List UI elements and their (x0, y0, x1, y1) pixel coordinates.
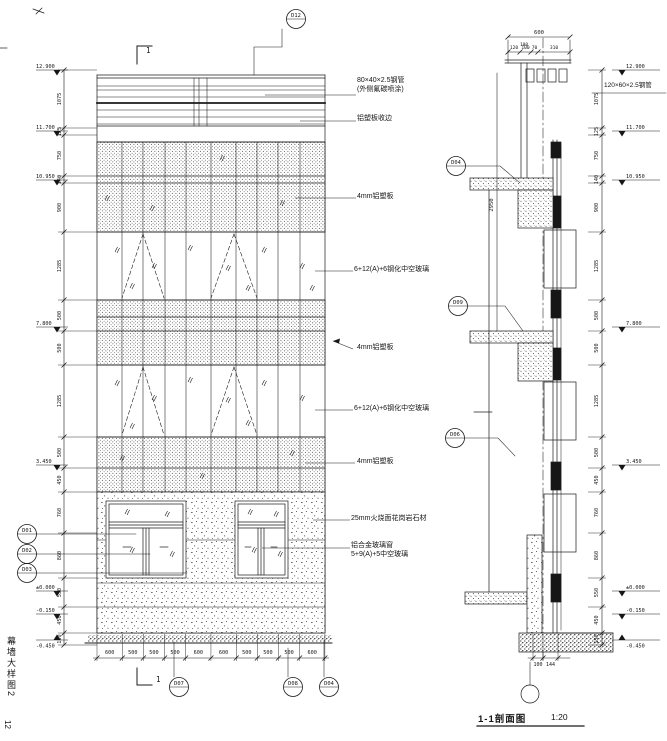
cad-sheet: 1075125750140900128550050012855004507608… (0, 0, 667, 741)
section-dim-scaffold (477, 37, 666, 726)
floor-slabs (465, 178, 613, 652)
section-top-dim-label: 70 (532, 45, 538, 51)
glass-mark (188, 377, 193, 383)
material-annotation: 80×40×2.5钢管(外侧氟碳喷涂) (357, 76, 404, 94)
right-dim-label: 450 (594, 615, 600, 624)
left-dim-label: 860 (57, 551, 63, 560)
bottom-dim-label: 600 (105, 650, 114, 656)
glass-mark (152, 395, 157, 401)
glass-mark (115, 247, 120, 253)
right-dim-label: 140 (594, 175, 600, 184)
bottom-dim-label: 500 (170, 650, 179, 656)
bottom-dim-label: 600 (308, 650, 317, 656)
level-triangle (54, 70, 61, 76)
section-top-dim-label: 120 (510, 45, 519, 51)
detail-bubble-label: D02 (22, 548, 32, 554)
detail-bubble-label: D06 (450, 432, 460, 438)
right-dim-label: 900 (594, 203, 600, 212)
level-triangle (619, 465, 626, 471)
level-label: 10.950 (36, 174, 55, 180)
material-annotation: 6+12(A)+6钢化中空玻璃 (354, 265, 429, 274)
level-label: ±0.000 (626, 585, 645, 591)
glass-mark (226, 265, 231, 271)
section-top-dim-label: 310 (550, 45, 559, 51)
material-annotation: 4mm铝塑板 (357, 343, 394, 352)
drawing-canvas: 1075125750140900128550050012855004507608… (0, 0, 667, 741)
steel-tube-note: 120×60×2.5钢管 (604, 79, 652, 89)
section-title: 1-1剖面图 (478, 711, 526, 725)
right-dim-label: 550 (594, 588, 600, 597)
level-triangle (619, 180, 626, 186)
section-bottom-dim-label: 144 (546, 662, 555, 668)
louver-band (97, 78, 325, 126)
material-annotation: 25mm火烧面花岗岩石材 (351, 514, 426, 523)
level-label: 7.800 (36, 321, 52, 327)
glass-mark (130, 283, 135, 289)
grid-axis-bubble (521, 685, 539, 703)
right-dim-label: 125 (594, 127, 600, 136)
bottom-dim-label: 600 (219, 650, 228, 656)
detail-bubble-label: D01 (22, 528, 32, 534)
level-triangle (54, 327, 61, 333)
glass-mark (310, 285, 315, 291)
detail-bubble-label: D09 (453, 300, 463, 306)
bottom-dim-label: 500 (284, 650, 293, 656)
level-label: -0.450 (626, 644, 645, 650)
level-label: -0.150 (36, 608, 55, 614)
section-top-sub-dim: 100 (520, 42, 528, 48)
right-dim-label: 500 (594, 343, 600, 352)
left-dim-label: 1285 (57, 395, 63, 408)
right-dim-label: 760 (594, 508, 600, 517)
left-dim-label: 500 (57, 448, 63, 457)
detail-bubble-label: D04 (324, 681, 334, 687)
glass-mark (152, 263, 157, 269)
bottom-dim-label: 500 (263, 650, 272, 656)
detail-bubble-label: D04 (451, 160, 461, 166)
glass-mark (226, 397, 231, 403)
section-overall-dim: 600 (534, 30, 544, 36)
right-dim-label: 450 (594, 475, 600, 484)
glass-mark (130, 423, 135, 429)
left-dim-label: 900 (57, 203, 63, 212)
left-dim-label: 500 (57, 343, 63, 352)
bottom-dim-label: 500 (128, 650, 137, 656)
level-label: 11.700 (36, 125, 55, 131)
section-cut-label-bottom: 1 (156, 675, 161, 684)
material-annotation: 4mm铝塑板 (357, 457, 394, 466)
detail-bubble-label: D12 (291, 13, 301, 19)
leader-arrowhead (333, 339, 340, 344)
glass-mark (188, 245, 193, 251)
right-dim-label: 1285 (594, 260, 600, 273)
level-triangle (619, 635, 626, 641)
glass-mark (246, 285, 251, 291)
sheet-title: 幕墙大样图2 (5, 636, 18, 698)
level-label: -0.150 (626, 608, 645, 614)
level-triangle (619, 614, 626, 620)
level-label: 11.700 (626, 125, 645, 131)
section-view (465, 37, 666, 726)
left-dim-label: 500 (57, 311, 63, 320)
detail-bubble-label: D08 (288, 681, 298, 687)
bottom-dim-label: 500 (149, 650, 158, 656)
level-triangle (619, 131, 626, 137)
level-label: 3.450 (626, 459, 642, 465)
section-scale: 1:20 (551, 712, 568, 722)
right-dim-label: 500 (594, 311, 600, 320)
glass-mark (115, 380, 120, 386)
level-triangle (54, 465, 61, 471)
left-dim-label: 1075 (57, 93, 63, 106)
level-label: -0.450 (36, 644, 55, 650)
level-triangle (619, 327, 626, 333)
level-label: 3.450 (36, 459, 52, 465)
left-dim-label: 750 (57, 151, 63, 160)
level-triangle (619, 591, 626, 597)
window-2 (235, 501, 288, 578)
right-dim-label: 500 (594, 448, 600, 457)
bottom-dim-label: 500 (242, 650, 251, 656)
bottom-dim-label: 600 (194, 650, 203, 656)
window-1 (106, 501, 186, 578)
right-dim-label: 150 (594, 634, 600, 643)
left-dim-label: 1285 (57, 260, 63, 273)
material-annotation: 6+12(A)+6钢化中空玻璃 (354, 404, 429, 413)
glass-mark (300, 395, 305, 401)
level-triangle (619, 70, 626, 76)
level-label: 12.900 (626, 64, 645, 70)
right-dim-label: 750 (594, 151, 600, 160)
left-dim-label: 760 (57, 508, 63, 517)
ground-hatch-strip (88, 635, 332, 642)
page-number: 12 (3, 720, 12, 729)
sheet-edge-marks (0, 8, 44, 48)
left-dim-label: 450 (57, 475, 63, 484)
material-annotation: 4mm铝塑板 (357, 192, 394, 201)
detail-bubble-label: D07 (174, 681, 184, 687)
section-cut-label-top: 1 (146, 46, 151, 55)
glass-mark (300, 263, 305, 269)
section-bottom-dim-label: 100 (533, 662, 542, 668)
section-height-dim: 2950 (489, 198, 495, 211)
level-label: 7.800 (626, 321, 642, 327)
right-dim-label: 860 (594, 551, 600, 560)
level-label: 12.900 (36, 64, 55, 70)
glass-mark (246, 420, 251, 426)
glass-mark (262, 380, 267, 386)
material-annotation: 铝塑板收边 (357, 114, 392, 123)
right-dim-label: 1075 (594, 93, 600, 106)
elevation-view (37, 29, 332, 685)
level-label: 10.950 (626, 174, 645, 180)
level-label: ±0.000 (36, 585, 55, 591)
right-dim-label: 1285 (594, 395, 600, 408)
glass-mark (262, 247, 267, 253)
detail-bubble-label: D03 (22, 567, 32, 573)
material-annotation: 铝合金玻璃窗5+9(A)+5中空玻璃 (351, 541, 408, 559)
